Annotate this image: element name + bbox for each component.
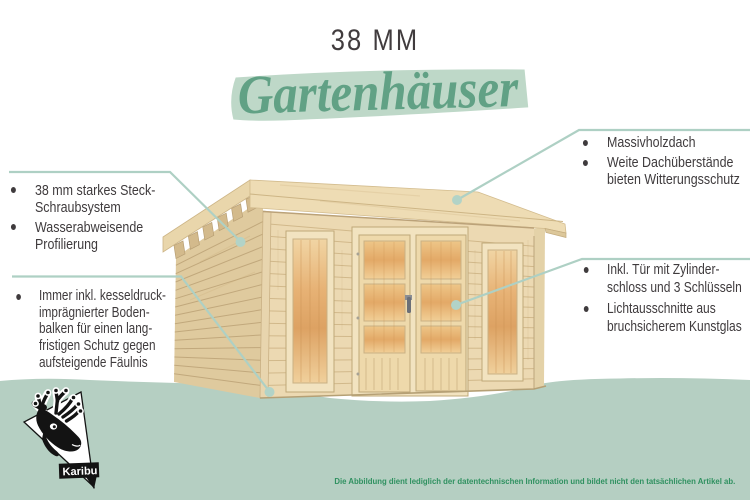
svg-text:Karibu: Karibu bbox=[62, 465, 97, 478]
